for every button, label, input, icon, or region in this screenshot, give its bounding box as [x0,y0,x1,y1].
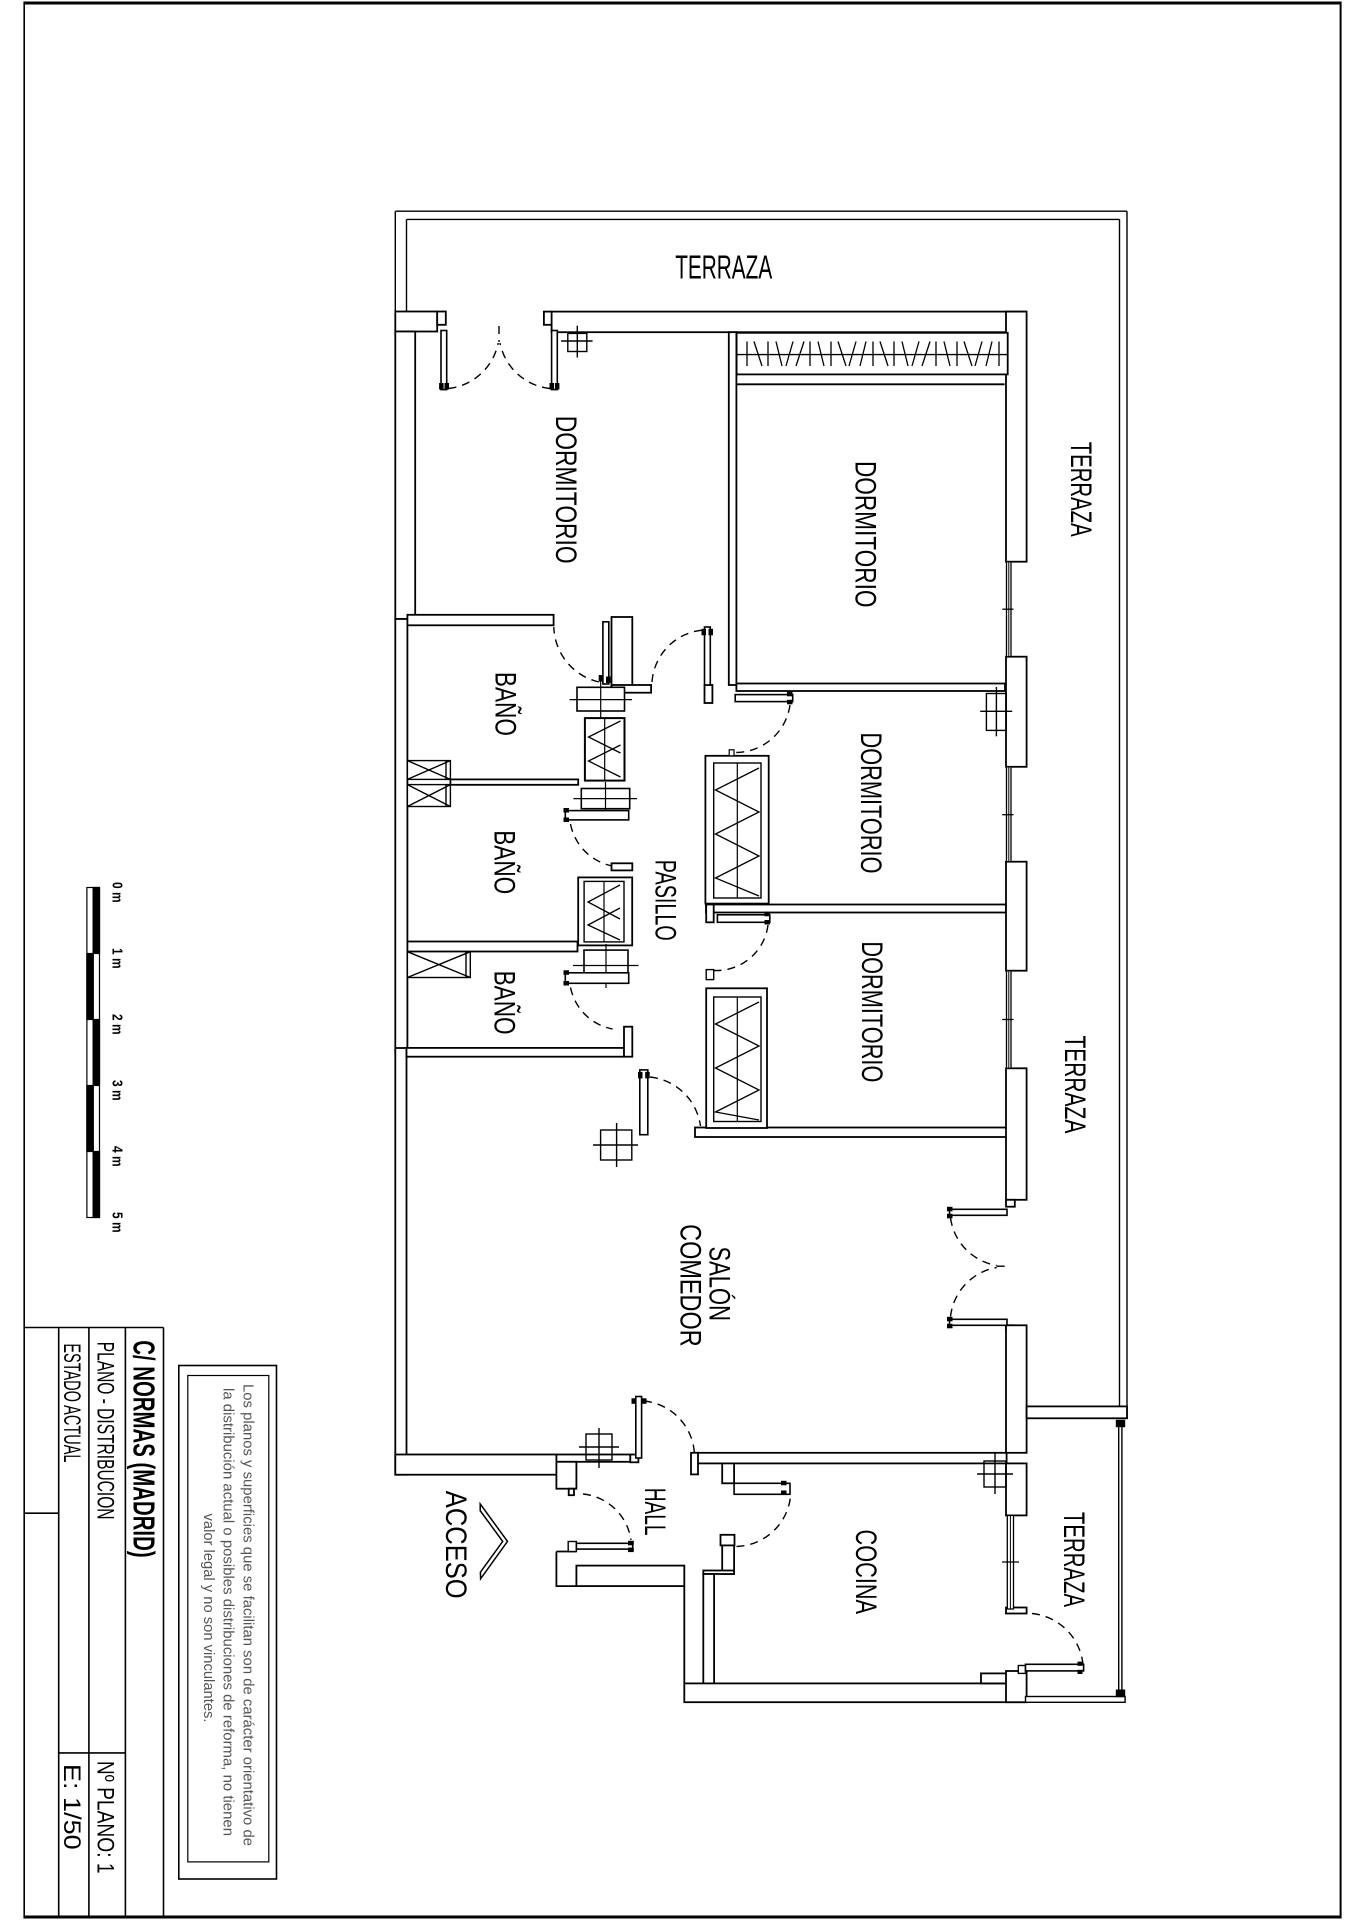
svg-text:Los planos y superficies que s: Los planos y superficies que se facilita… [239,1384,256,1846]
svg-text:PLANO - DISTRIBUCION: PLANO - DISTRIBUCION [92,1342,119,1520]
svg-text:BAÑO: BAÑO [488,830,522,894]
svg-text:5 m: 5 m [109,1212,126,1233]
svg-text:DORMITORIO: DORMITORIO [848,461,881,608]
svg-text:DORMITORIO: DORMITORIO [549,416,582,564]
svg-text:TERRAZA: TERRAZA [1057,1512,1090,1607]
svg-text:2 m: 2 m [109,1014,126,1035]
svg-text:TERRAZA: TERRAZA [1058,1035,1091,1133]
svg-text:3 m: 3 m [109,1080,126,1101]
svg-text:4 m: 4 m [109,1146,126,1167]
svg-text:TERRAZA: TERRAZA [675,249,772,286]
svg-text:1 m: 1 m [109,948,126,969]
svg-text:TERRAZA: TERRAZA [1064,442,1097,537]
svg-text:la distribución actual o posi: la distribución actual o posibles distri… [220,1388,237,1836]
svg-text:BAÑO: BAÑO [489,672,523,736]
svg-text:DORMITORIO: DORMITORIO [855,941,888,1082]
svg-text:PASILLO: PASILLO [649,860,682,941]
svg-text:DORMITORIO: DORMITORIO [854,733,887,874]
svg-text:ESTADO ACTUAL: ESTADO ACTUAL [58,1343,85,1462]
svg-text:COMEDOR: COMEDOR [673,1224,706,1347]
svg-text:E: 1/50: E: 1/50 [58,1764,85,1850]
svg-text:valor legal y no son vinculant: valor legal y no son vinculantes. [200,1514,217,1723]
svg-text:Nº PLANO: 1: Nº PLANO: 1 [92,1761,119,1874]
svg-text:0 m: 0 m [109,882,126,903]
svg-text:ACCESO: ACCESO [439,1491,472,1599]
svg-text:SALÓN: SALÓN [703,1246,736,1321]
svg-text:COCINA: COCINA [849,1530,882,1615]
svg-text:HALL: HALL [638,1488,671,1536]
svg-text:C/ NORMAS (MADRID): C/ NORMAS (MADRID) [126,1340,161,1557]
svg-text:BAÑO: BAÑO [488,971,522,1035]
